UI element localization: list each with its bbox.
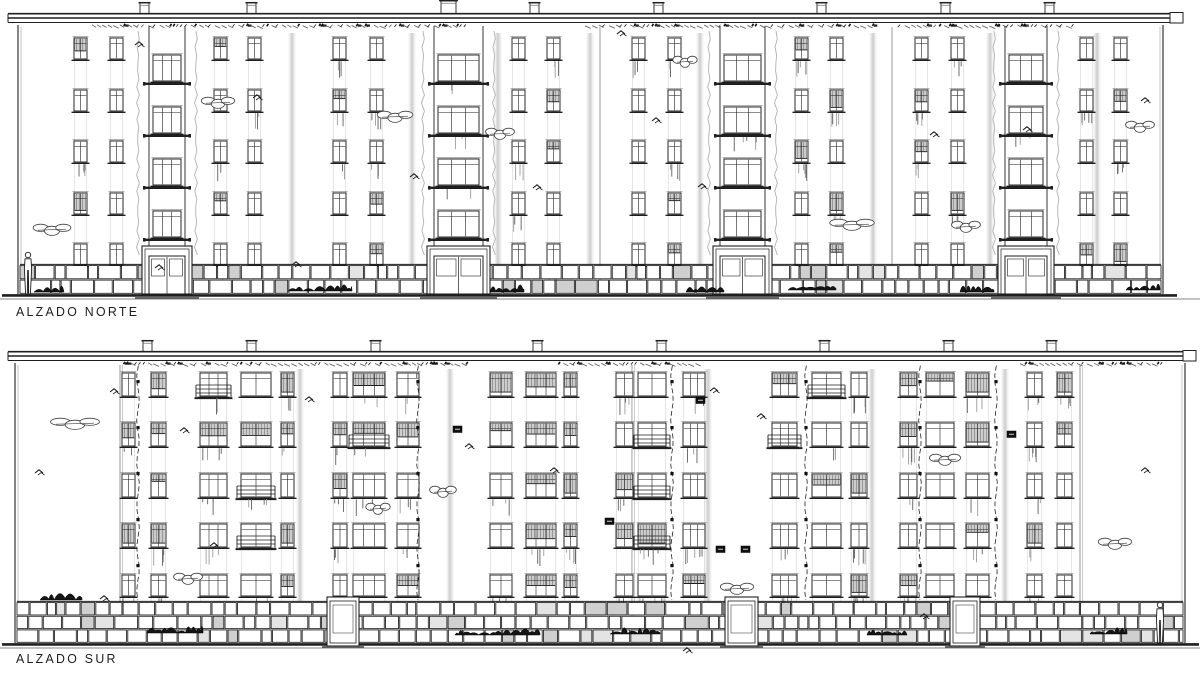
- window: [772, 575, 797, 596]
- eave-vegetation: [385, 363, 390, 366]
- masonry-block: [193, 280, 208, 293]
- eave-vegetation: [1031, 24, 1033, 27]
- sill-band-cap: [189, 134, 192, 138]
- downspout-bracket: [416, 472, 419, 475]
- masonry-block: [121, 266, 136, 279]
- eave-vegetation: [844, 24, 846, 27]
- sill-band-cap: [999, 134, 1002, 138]
- bird-mark: [620, 34, 627, 36]
- eave-vegetation: [995, 24, 996, 27]
- masonry-block: [29, 616, 42, 628]
- window: [353, 575, 385, 596]
- masonry-block: [556, 280, 574, 293]
- eave-vegetation: [251, 25, 256, 28]
- eave-vegetation: [459, 24, 461, 27]
- eave-vegetation: [170, 24, 172, 27]
- sill-band-cap: [143, 238, 146, 242]
- masonry-block: [1066, 266, 1082, 279]
- eave-vegetation: [640, 363, 644, 366]
- eave-vegetation: [927, 24, 928, 27]
- masonry-block: [485, 616, 501, 628]
- shrub-outline: [366, 503, 390, 514]
- eave-vegetation: [939, 24, 941, 27]
- masonry-block: [251, 280, 262, 293]
- masonry-block: [302, 630, 324, 642]
- masonry-block: [622, 616, 645, 628]
- shrub-outline: [929, 454, 960, 465]
- masonry-block: [71, 280, 93, 293]
- masonry-block: [448, 616, 464, 628]
- masonry-block: [541, 266, 561, 279]
- eave-vegetation: [679, 25, 683, 28]
- stair-window-sill-band: [145, 135, 189, 137]
- window: [683, 423, 705, 446]
- window-roller-blind: [967, 525, 988, 532]
- window: [153, 55, 181, 81]
- shrub-lobe: [740, 583, 753, 590]
- eave-vegetation: [166, 362, 167, 365]
- eave-vegetation: [433, 362, 434, 365]
- masonry-block: [709, 616, 718, 628]
- eave-vegetation: [799, 24, 800, 27]
- masonry-block: [55, 630, 77, 642]
- door-step-shadow: [945, 646, 985, 648]
- eave-vegetation: [652, 362, 653, 365]
- stair-window-sill-band: [145, 187, 189, 189]
- eave-vegetation: [136, 25, 138, 28]
- eave-vegetation: [1157, 362, 1159, 365]
- eave-vegetation: [956, 26, 962, 29]
- downspout-bracket: [918, 426, 921, 429]
- eave-vegetation: [838, 25, 842, 27]
- sill-band-cap: [143, 82, 146, 86]
- masonry-block: [213, 616, 224, 628]
- eave-vegetation: [304, 364, 309, 367]
- masonry-block: [571, 603, 585, 615]
- eave-vegetation: [873, 24, 874, 27]
- eave-vegetation: [696, 363, 701, 366]
- bird-mark: [930, 132, 938, 135]
- masonry-block: [244, 616, 254, 628]
- window-roller-blind: [334, 475, 346, 489]
- sill-band-cap: [999, 238, 1002, 242]
- shrub-lobe: [399, 111, 413, 118]
- eave-vegetation: [421, 362, 423, 365]
- eave-vegetation: [789, 25, 794, 28]
- masonry-block: [581, 630, 592, 642]
- eave-vegetation: [558, 362, 560, 365]
- window: [438, 107, 479, 133]
- masonry-block: [1163, 603, 1183, 615]
- eave-vegetation: [457, 24, 459, 27]
- masonry-block: [1007, 616, 1015, 628]
- stair-window-sill-band: [145, 83, 189, 85]
- window: [438, 159, 479, 185]
- masonry-block: [516, 616, 530, 628]
- eave-vegetation: [176, 24, 178, 27]
- masonry-block: [1113, 280, 1130, 293]
- masonry-block: [610, 280, 627, 293]
- eave-vegetation: [898, 25, 900, 28]
- eave-vegetation: [1035, 25, 1037, 28]
- eave-vegetation: [419, 24, 421, 27]
- downspout-bracket: [670, 380, 673, 383]
- eave-vegetation: [430, 362, 431, 365]
- eave-vegetation: [1060, 24, 1062, 27]
- masonry-block: [548, 616, 568, 628]
- downspout-bracket: [918, 472, 921, 475]
- masonry-block: [766, 603, 780, 615]
- eave-vegetation: [690, 26, 696, 29]
- masonry-block: [937, 266, 953, 279]
- eave-vegetation: [298, 363, 303, 366]
- masonry-block: [820, 630, 836, 642]
- masonry-block: [809, 616, 819, 628]
- door-step-shadow: [322, 646, 364, 648]
- masonry-block: [661, 266, 673, 279]
- masonry-block: [391, 603, 406, 615]
- eave-vegetation: [124, 362, 125, 365]
- masonry-block: [377, 280, 399, 293]
- window: [200, 373, 227, 396]
- eave-vegetation: [822, 24, 824, 27]
- sill-band-cap: [428, 82, 431, 86]
- stair-window-sill-band: [145, 239, 189, 241]
- masonry-block: [698, 630, 711, 642]
- masonry-block: [673, 266, 690, 279]
- eave-vegetation: [360, 364, 366, 367]
- eave-vegetation: [215, 363, 220, 366]
- eave-vegetation: [160, 25, 165, 28]
- downspout-bracket: [416, 564, 419, 567]
- eave-vegetation: [1045, 363, 1049, 366]
- stair-window-sill-band: [1001, 187, 1051, 189]
- eave-vegetation: [303, 26, 308, 29]
- eave-vegetation: [208, 25, 210, 28]
- bird-mark: [1141, 98, 1149, 101]
- eave-vegetation: [917, 25, 922, 28]
- masonry-block: [905, 603, 916, 615]
- masonry-block: [272, 630, 287, 642]
- window: [1009, 211, 1043, 237]
- bird-mark: [1144, 101, 1151, 103]
- window: [1009, 107, 1043, 133]
- masonry-block: [646, 603, 665, 615]
- eave-vegetation: [374, 25, 379, 28]
- masonry-block: [576, 280, 598, 293]
- eave-vegetation: [356, 24, 357, 27]
- masonry-block: [628, 280, 647, 293]
- bird-mark: [308, 400, 315, 402]
- masonry-block: [1016, 616, 1036, 628]
- sill-band-cap: [1051, 82, 1054, 86]
- eave-vegetation: [291, 364, 297, 367]
- masonry-block: [225, 603, 236, 615]
- masonry-block: [55, 266, 65, 279]
- masonry-block: [441, 603, 453, 615]
- stair-window-sill-band: [430, 187, 487, 189]
- window: [200, 575, 227, 596]
- window-roller-blind: [334, 424, 346, 435]
- eave-vegetation: [1062, 363, 1066, 366]
- sill-band-cap: [189, 238, 192, 242]
- eave-vegetation: [358, 25, 362, 27]
- masonry-block: [77, 630, 87, 642]
- masonry-block: [95, 280, 113, 293]
- shrub-outline: [174, 573, 203, 584]
- eave-vegetation: [153, 364, 159, 367]
- masonry-block: [178, 616, 201, 628]
- eave-vegetation: [710, 25, 714, 28]
- sill-band-cap: [487, 82, 490, 86]
- eave-vegetation: [704, 25, 708, 28]
- window: [683, 524, 705, 547]
- masonry-block: [66, 266, 87, 279]
- window-roller-blind: [354, 374, 384, 386]
- person-figure-body: [24, 259, 31, 294]
- eave-vegetation: [665, 362, 666, 365]
- masonry-block: [756, 616, 772, 628]
- shrub-lobe: [856, 219, 874, 226]
- masonry-block: [63, 616, 81, 628]
- masonry-block: [924, 280, 938, 293]
- eave-vegetation: [1082, 362, 1084, 365]
- eave-vegetation: [439, 24, 441, 27]
- eave-vegetation: [257, 26, 263, 29]
- eave-vegetation: [667, 363, 671, 365]
- masonry-block: [662, 630, 681, 642]
- downspout-bracket: [994, 426, 997, 429]
- downspout-bracket: [918, 380, 921, 383]
- masonry-block: [225, 616, 243, 628]
- eave-vegetation: [771, 24, 773, 27]
- masonry-block: [399, 266, 414, 279]
- eave-vegetation: [1050, 363, 1055, 366]
- shrub-lobe: [380, 503, 390, 510]
- masonry-block: [1164, 630, 1179, 642]
- eave-vegetation: [697, 26, 703, 29]
- eave-vegetation: [734, 25, 739, 28]
- masonry-block: [476, 603, 494, 615]
- masonry-block: [1065, 603, 1080, 615]
- masonry-block: [188, 603, 211, 615]
- eave-vegetation: [161, 364, 166, 367]
- masonry-block: [1060, 630, 1081, 642]
- eave-vegetation: [760, 25, 765, 28]
- masonry-block: [791, 266, 799, 279]
- eave-vegetation: [428, 24, 430, 27]
- eave-vegetation: [141, 25, 143, 28]
- eave-vegetation: [240, 362, 242, 365]
- stair-window-sill-band: [1001, 239, 1051, 241]
- masonry-block: [662, 280, 676, 293]
- downspout-bracket: [136, 426, 139, 429]
- masonry-block: [407, 603, 415, 615]
- eave-vegetation: [631, 362, 633, 365]
- eave-vegetation: [178, 362, 179, 365]
- sill-band-cap: [999, 82, 1002, 86]
- weathering-line: [137, 31, 140, 255]
- shrub-dark: [40, 594, 82, 600]
- eave-vegetation: [1011, 25, 1013, 28]
- bird-mark: [35, 470, 43, 473]
- masonry-block: [799, 616, 808, 628]
- eave-vegetation: [446, 363, 450, 365]
- masonry-block: [400, 616, 416, 628]
- eave-vegetation: [102, 25, 106, 28]
- eave-vegetation: [284, 364, 290, 367]
- masonry-block: [1141, 630, 1153, 642]
- masonry-block: [812, 266, 826, 279]
- masonry-block: [293, 266, 310, 279]
- bird-mark: [760, 417, 767, 419]
- eave-vegetation: [324, 363, 328, 366]
- eave-vegetation: [1056, 363, 1061, 366]
- eave-vegetation: [976, 26, 981, 29]
- eave-vegetation: [314, 24, 316, 27]
- masonry-block: [30, 603, 46, 615]
- shrub-outline: [201, 97, 234, 108]
- eave-vegetation: [1099, 362, 1100, 365]
- masonry-block: [288, 616, 308, 628]
- eave-vegetation: [124, 24, 125, 27]
- shrub-outline: [830, 219, 874, 230]
- eave-vegetation: [278, 363, 283, 366]
- masonry-block: [388, 266, 398, 279]
- eave-vegetation: [944, 26, 949, 29]
- masonry-block: [1055, 280, 1076, 293]
- eave-vegetation: [688, 364, 694, 367]
- roof-end-cap: [1170, 13, 1183, 24]
- sill-band-cap: [428, 186, 431, 190]
- sill-band-cap: [189, 186, 192, 190]
- masonry-block: [1014, 603, 1035, 615]
- eave-vegetation: [262, 24, 264, 27]
- weathering-line: [775, 31, 778, 255]
- door-step-shadow: [720, 646, 763, 648]
- masonry-block: [800, 266, 810, 279]
- masonry-block: [666, 603, 689, 615]
- masonry-block: [996, 603, 1013, 615]
- masonry-block: [36, 266, 54, 279]
- bird-mark: [103, 599, 110, 601]
- masonry-block: [1037, 616, 1057, 628]
- eave-vegetation: [1039, 363, 1043, 366]
- window: [438, 55, 479, 81]
- masonry-block: [204, 266, 216, 279]
- eave-vegetation: [449, 363, 453, 366]
- person-figure-head: [1157, 602, 1162, 607]
- masonry-block: [909, 280, 923, 293]
- eave-vegetation: [173, 24, 175, 27]
- masonry-block: [837, 616, 850, 628]
- masonry-block: [637, 266, 646, 279]
- eave-vegetation: [860, 26, 866, 29]
- eave-vegetation: [659, 25, 664, 28]
- masonry-block: [1092, 266, 1103, 279]
- masonry-block: [609, 616, 620, 628]
- eave-vegetation: [1021, 24, 1022, 27]
- masonry-block: [81, 603, 94, 615]
- door-step-shadow: [706, 297, 779, 299]
- masonry-block: [692, 266, 707, 279]
- elevation-label-south: ALZADO SUR: [16, 651, 118, 666]
- downspout-bracket: [136, 472, 139, 475]
- masonry-block: [877, 603, 886, 615]
- masonry-block: [537, 603, 556, 615]
- eave-vegetation: [271, 364, 277, 367]
- masonry-block: [792, 603, 813, 615]
- bird-mark: [138, 45, 145, 47]
- shrub-outline: [51, 418, 100, 429]
- eave-vegetation: [232, 364, 237, 367]
- masonry-block: [39, 630, 53, 642]
- masonry-block: [331, 266, 348, 279]
- masonry-block: [358, 280, 376, 293]
- masonry-block: [690, 603, 701, 615]
- masonry-block: [508, 266, 521, 279]
- sill-band-cap: [714, 238, 717, 242]
- shrub-outline: [486, 128, 515, 139]
- masonry-block: [399, 630, 415, 642]
- sill-band-cap: [769, 82, 772, 86]
- bird-mark: [1141, 468, 1149, 471]
- masonry-block: [929, 630, 944, 642]
- masonry-block: [380, 630, 398, 642]
- masonry-block: [1094, 616, 1104, 628]
- masonry-block: [417, 603, 440, 615]
- bird-mark: [713, 391, 720, 393]
- bird-mark: [110, 389, 118, 392]
- eave-vegetation: [368, 362, 370, 365]
- eave-vegetation: [1025, 362, 1027, 365]
- eave-vegetation: [949, 24, 950, 27]
- eave-vegetation: [832, 24, 834, 27]
- eave-vegetation: [319, 24, 320, 27]
- eave-vegetation: [969, 25, 974, 28]
- masonry-block: [241, 266, 261, 279]
- downspout-bracket: [918, 518, 921, 521]
- masonry-block: [979, 616, 995, 628]
- window: [683, 575, 705, 596]
- downspout-bracket: [670, 518, 673, 521]
- eave-vegetation: [989, 26, 995, 29]
- eave-vegetation: [247, 24, 248, 27]
- sill-band-cap: [1051, 238, 1054, 242]
- masonry-block: [1174, 616, 1183, 628]
- eave-vegetation: [626, 363, 628, 366]
- masonry-block: [96, 603, 109, 615]
- masonry-block: [887, 616, 900, 628]
- stair-window-sill-band: [430, 239, 487, 241]
- window: [1009, 159, 1043, 185]
- masonry-block: [887, 603, 904, 615]
- bird-mark: [550, 468, 558, 471]
- eave-vegetation: [766, 26, 772, 29]
- masonry-block: [866, 616, 885, 628]
- eave-vegetation: [426, 362, 428, 365]
- shrub-lobe: [1118, 538, 1131, 545]
- masonry-block: [851, 616, 866, 628]
- eave-vegetation: [399, 24, 400, 27]
- eave-vegetation: [113, 26, 118, 29]
- eave-vegetation: [1050, 24, 1052, 27]
- masonry-block: [1083, 266, 1091, 279]
- eave-vegetation: [1152, 364, 1158, 367]
- sill-band-cap: [714, 186, 717, 190]
- bird-mark: [180, 428, 188, 431]
- eave-vegetation: [755, 24, 757, 27]
